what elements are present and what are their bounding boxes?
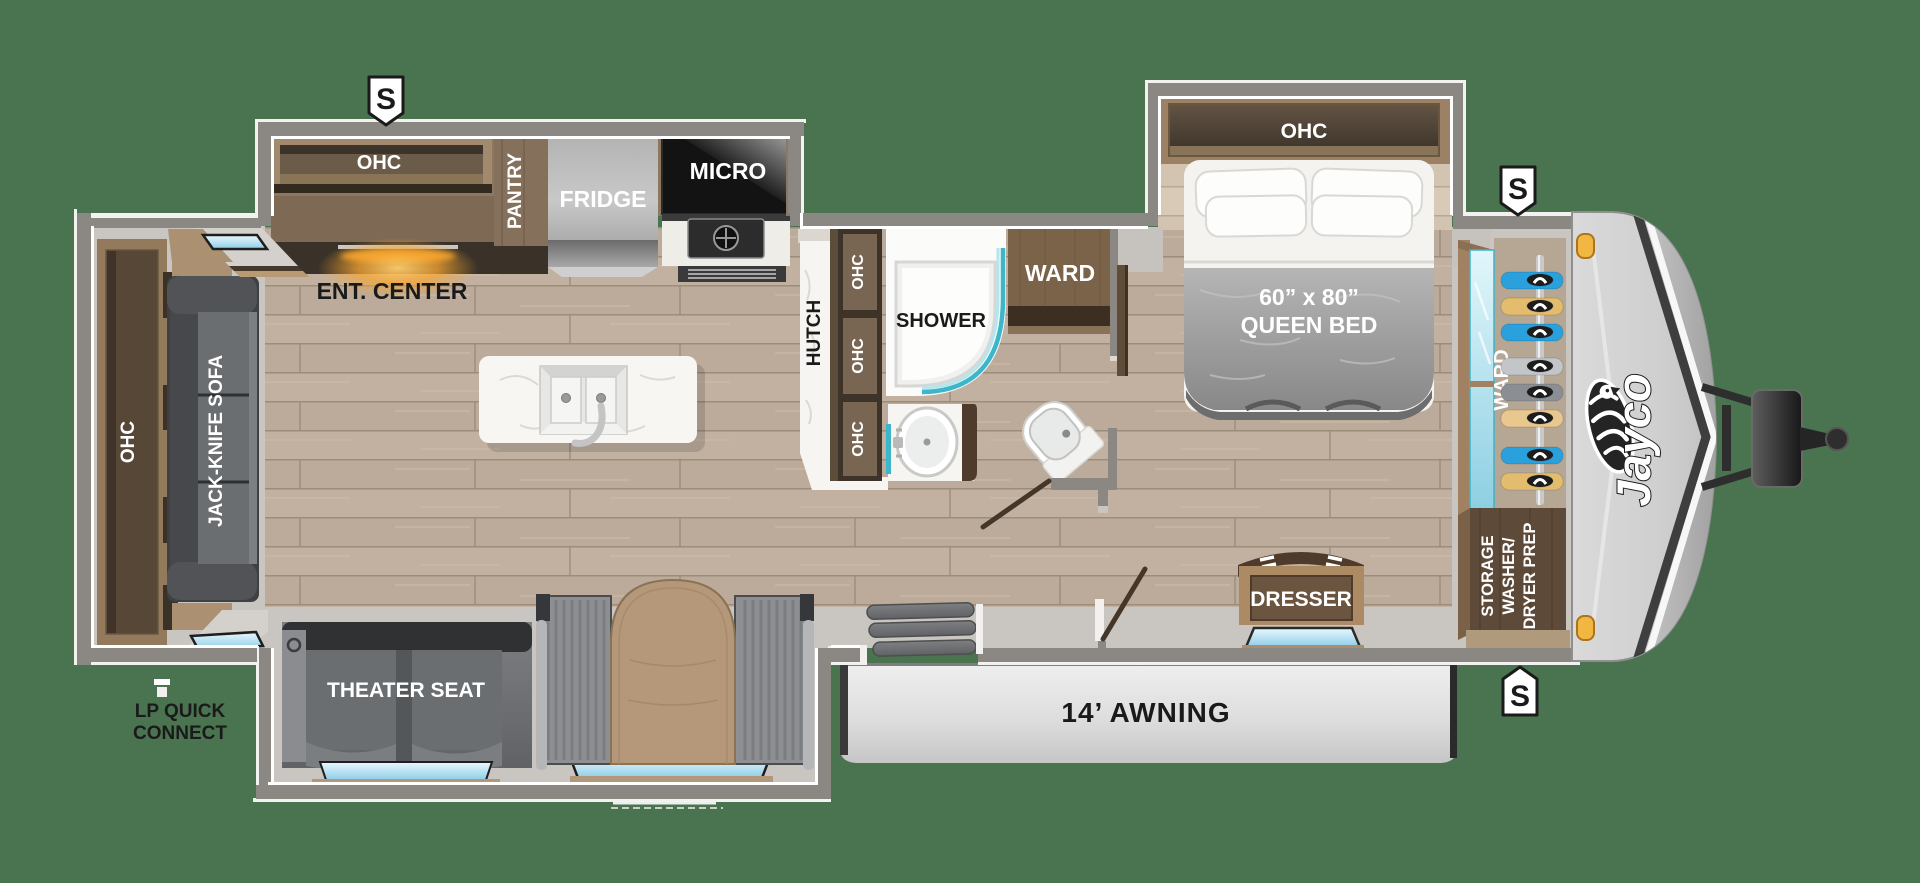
svg-text:WARD: WARD <box>1025 260 1095 286</box>
svg-text:S: S <box>376 83 396 116</box>
svg-text:STORAGE: STORAGE <box>1479 535 1497 616</box>
svg-text:DRESSER: DRESSER <box>1250 588 1352 611</box>
svg-text:60” x 80”: 60” x 80” <box>1259 284 1359 310</box>
svg-text:FRIDGE: FRIDGE <box>560 186 647 212</box>
svg-text:S: S <box>1510 680 1530 713</box>
svg-text:MICRO: MICRO <box>690 158 767 184</box>
svg-text:OHC: OHC <box>850 338 867 374</box>
svg-text:HUTCH: HUTCH <box>804 300 825 367</box>
svg-text:JACK-KNIFE SOFA: JACK-KNIFE SOFA <box>206 355 227 527</box>
svg-text:PANTRY: PANTRY <box>505 153 526 229</box>
svg-text:THEATER SEAT: THEATER SEAT <box>327 679 485 702</box>
svg-text:QUEEN BED: QUEEN BED <box>1241 312 1378 338</box>
svg-text:ENT. CENTER: ENT. CENTER <box>317 278 468 304</box>
svg-text:S: S <box>1508 173 1528 206</box>
svg-text:OHC: OHC <box>850 254 867 290</box>
svg-text:WASHER/: WASHER/ <box>1500 537 1518 614</box>
svg-text:14’ AWNING: 14’ AWNING <box>1061 697 1230 728</box>
svg-text:Jayco: Jayco <box>1607 373 1660 506</box>
svg-text:OHC: OHC <box>1281 120 1328 143</box>
svg-text:DRYER PREP: DRYER PREP <box>1521 523 1539 630</box>
svg-text:OHC: OHC <box>850 421 867 457</box>
svg-text:CONNECT: CONNECT <box>133 723 227 744</box>
svg-text:LP QUICK: LP QUICK <box>135 701 226 722</box>
svg-text:OHC: OHC <box>357 152 401 174</box>
svg-text:SHOWER: SHOWER <box>896 310 987 332</box>
svg-text:OHC: OHC <box>118 421 139 464</box>
